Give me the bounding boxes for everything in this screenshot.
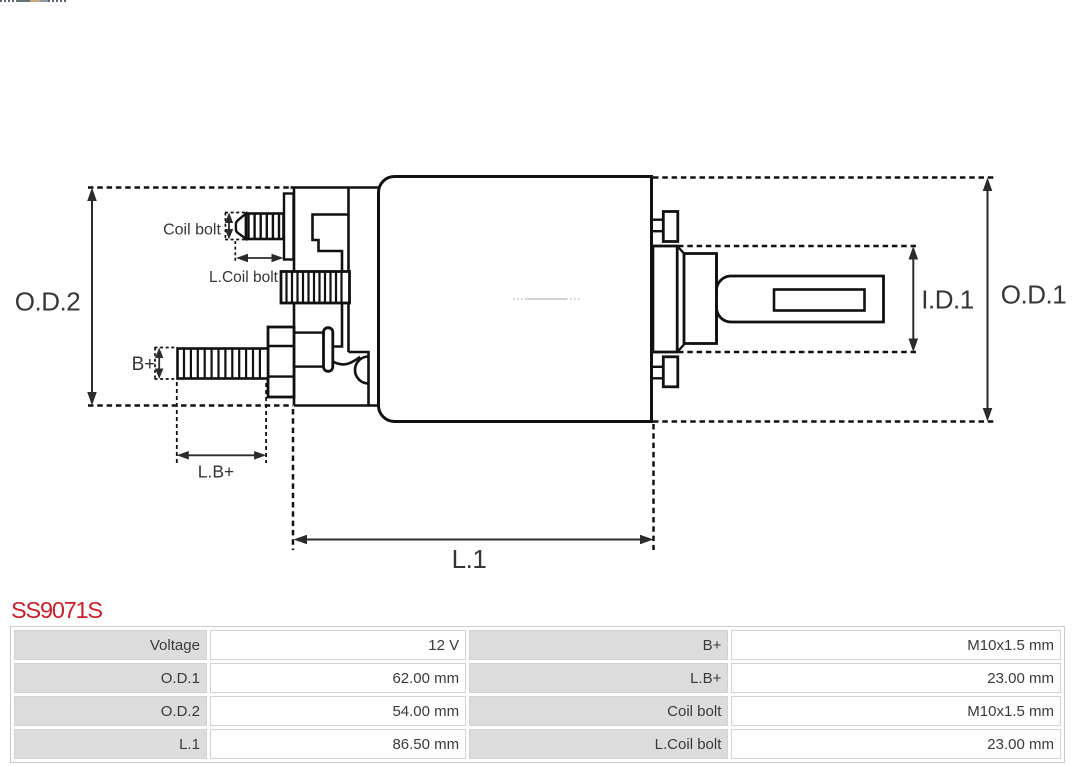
svg-text:L.B+: L.B+ <box>198 462 235 482</box>
svg-text:Coil bolt: Coil bolt <box>163 222 221 239</box>
svg-text:L.1: L.1 <box>452 544 487 574</box>
svg-text:L.Coil bolt: L.Coil bolt <box>209 269 279 286</box>
svg-text:I.D.1: I.D.1 <box>921 285 973 315</box>
svg-text:B+: B+ <box>132 354 156 375</box>
svg-text:O.D.2: O.D.2 <box>15 287 80 317</box>
svg-text:O.D.1: O.D.1 <box>1001 280 1066 310</box>
